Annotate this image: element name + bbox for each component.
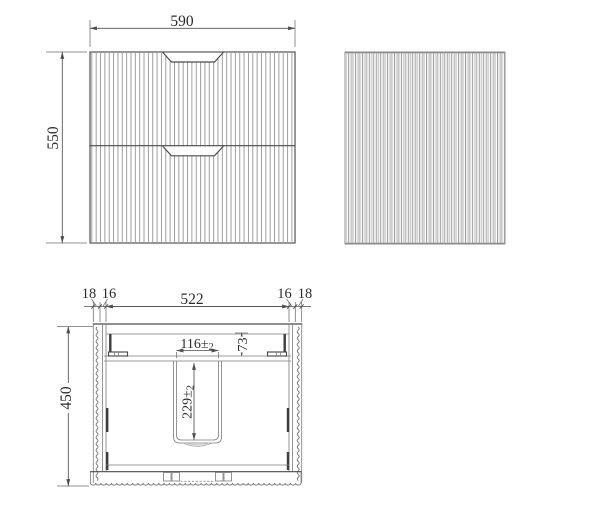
- dim-cutout-offset: 73: [235, 333, 251, 356]
- side-panel-flutes: [346, 53, 505, 245]
- dim-front-width: 590: [90, 13, 295, 47]
- left-slide-bracket: [109, 352, 128, 356]
- dim-cutout-width: 116±2: [177, 337, 219, 358]
- cutout-depth-label: 229±2: [181, 385, 197, 419]
- side-view: [345, 52, 505, 244]
- section-depth-label: 450: [58, 386, 75, 410]
- cutout-offset-label: 73: [236, 338, 251, 352]
- cutout-width-label: 116±2: [180, 337, 213, 353]
- dim-front-height: 550: [45, 52, 87, 243]
- right-foot-bracket: [216, 473, 232, 482]
- right-wall-thickness-label: 18: [298, 286, 313, 302]
- left-panel-thickness-label: 16: [102, 286, 117, 302]
- top-drawer-handle-notch: [163, 53, 223, 62]
- right-fluted-edge: [297, 327, 299, 481]
- right-slide-bracket: [268, 352, 287, 356]
- technical-drawing-canvas: 590 550: [0, 0, 600, 515]
- dim-section-top: 18 16 522 16 18: [82, 286, 313, 322]
- front-height-label: 550: [45, 126, 62, 150]
- left-fluted-edge: [96, 327, 98, 481]
- left-wall-thickness-label: 18: [82, 286, 97, 302]
- dim-section-depth: 450: [57, 327, 93, 487]
- left-foot-bracket: [164, 473, 180, 482]
- front-view: [90, 52, 295, 243]
- inner-width-label: 522: [180, 291, 203, 308]
- base-fluted-front-edge: [91, 483, 301, 485]
- right-panel-thickness-label: 16: [277, 286, 292, 302]
- dim-cutout-depth: 229±2: [181, 363, 197, 440]
- front-width-label: 590: [170, 13, 194, 30]
- bottom-drawer-handle-notch: [163, 147, 223, 156]
